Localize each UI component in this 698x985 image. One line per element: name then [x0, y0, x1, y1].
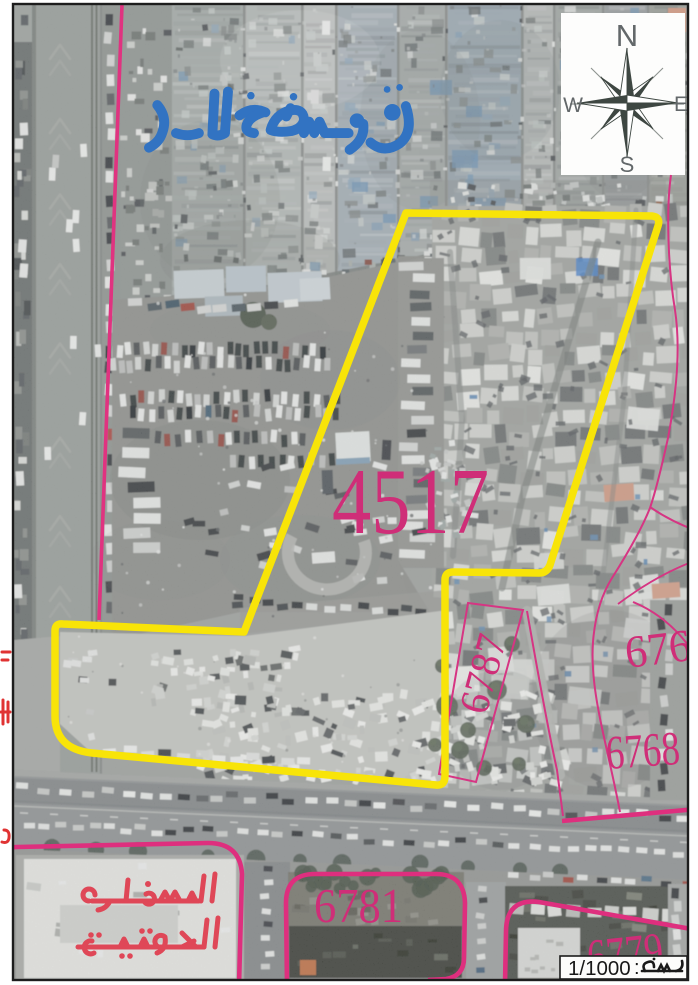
svg-text:1/1000: 1/1000	[568, 957, 631, 980]
svg-text:E: E	[674, 93, 688, 116]
svg-text:4517: 4517	[332, 450, 489, 554]
svg-text:6781: 6781	[314, 878, 403, 933]
svg-text:N: N	[616, 18, 638, 53]
svg-text:676: 676	[622, 619, 694, 678]
svg-text::: :	[634, 957, 640, 979]
svg-text:6768: 6768	[604, 722, 682, 780]
svg-text:S: S	[620, 152, 635, 177]
svg-text:W: W	[563, 94, 583, 117]
